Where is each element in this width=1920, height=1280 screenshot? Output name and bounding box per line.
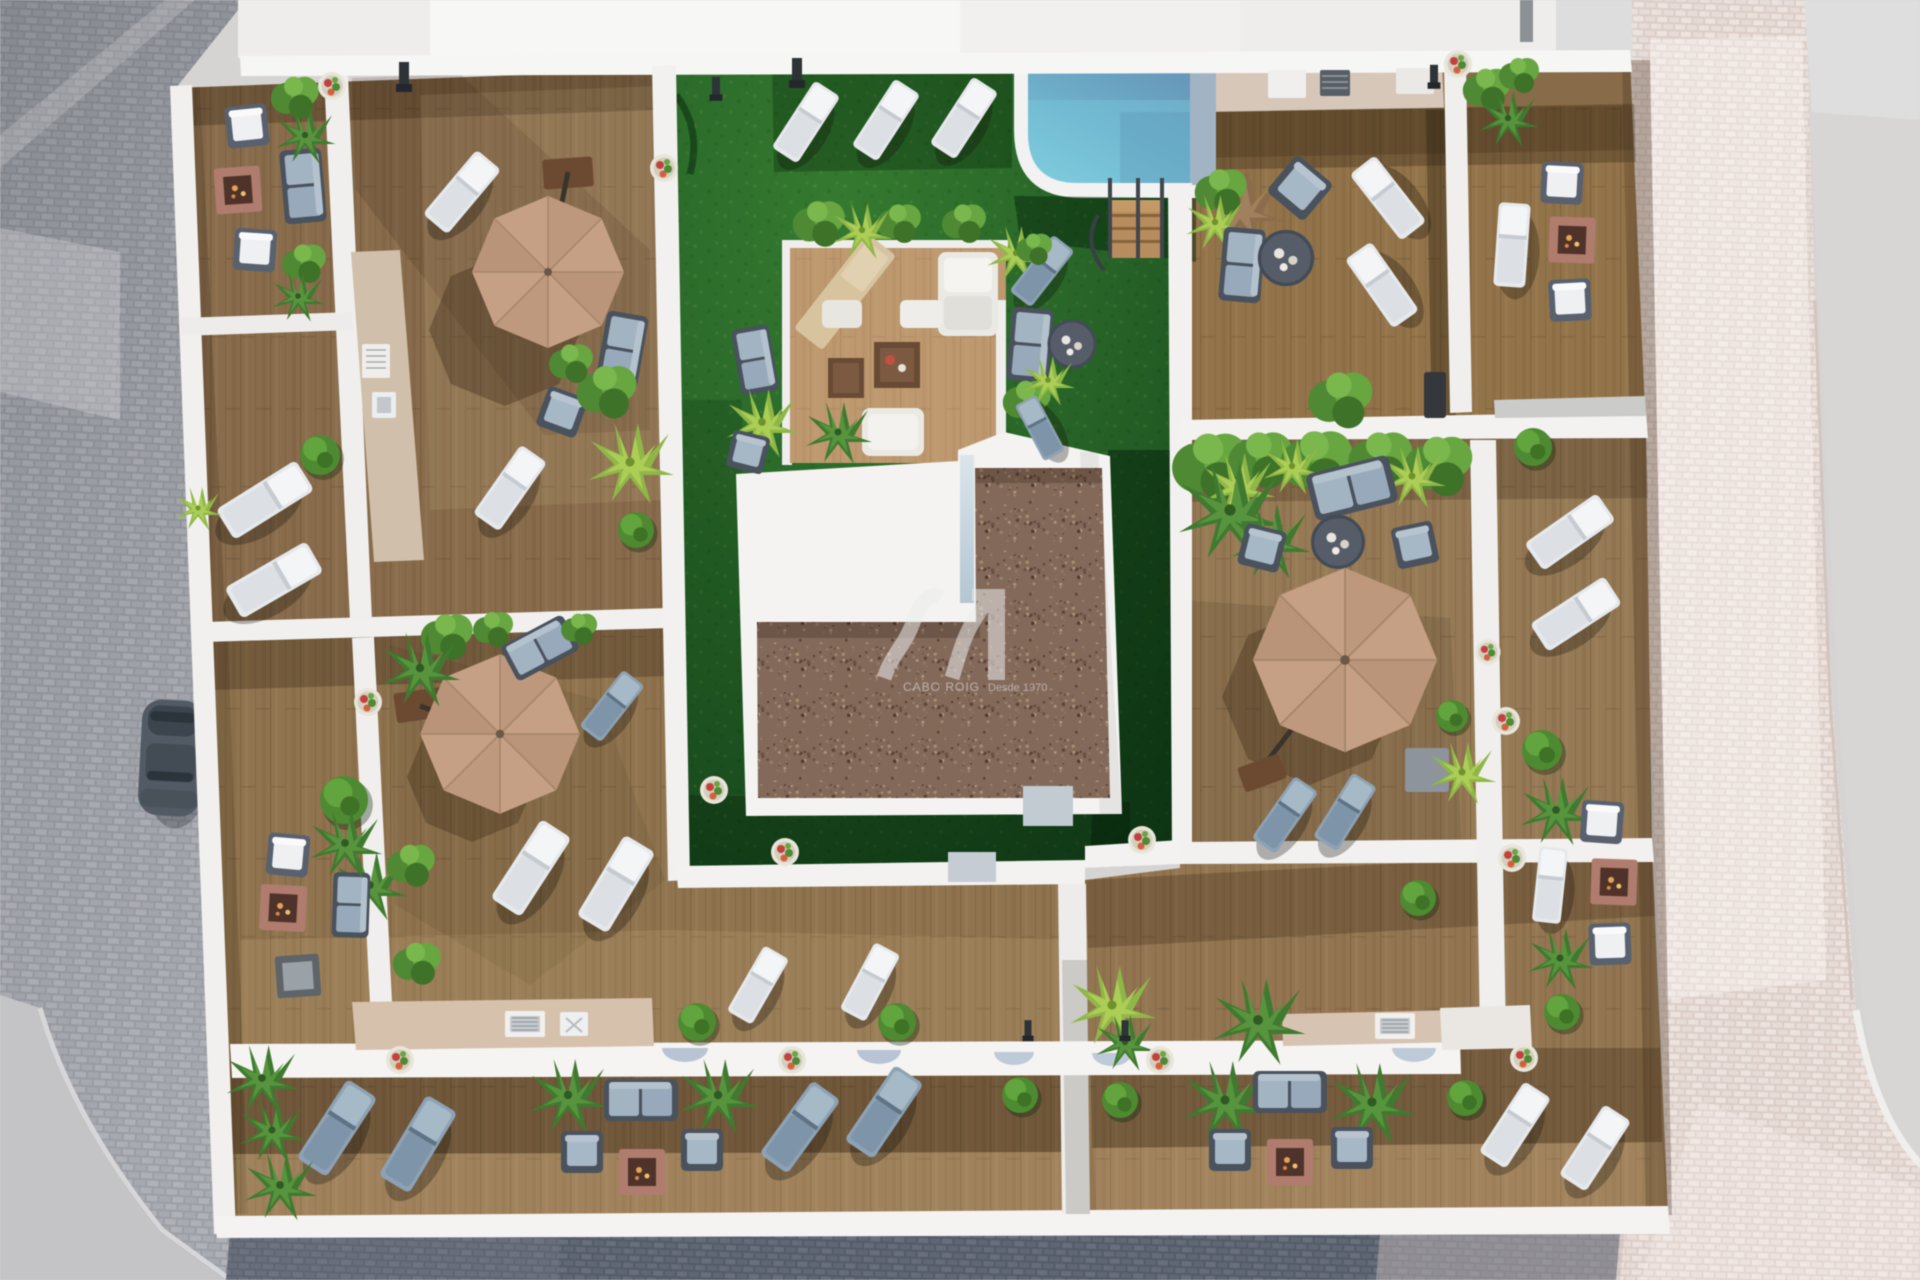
svg-text:CABO ROIG: CABO ROIG	[903, 680, 980, 694]
svg-text:Desde 1970: Desde 1970	[988, 682, 1047, 694]
